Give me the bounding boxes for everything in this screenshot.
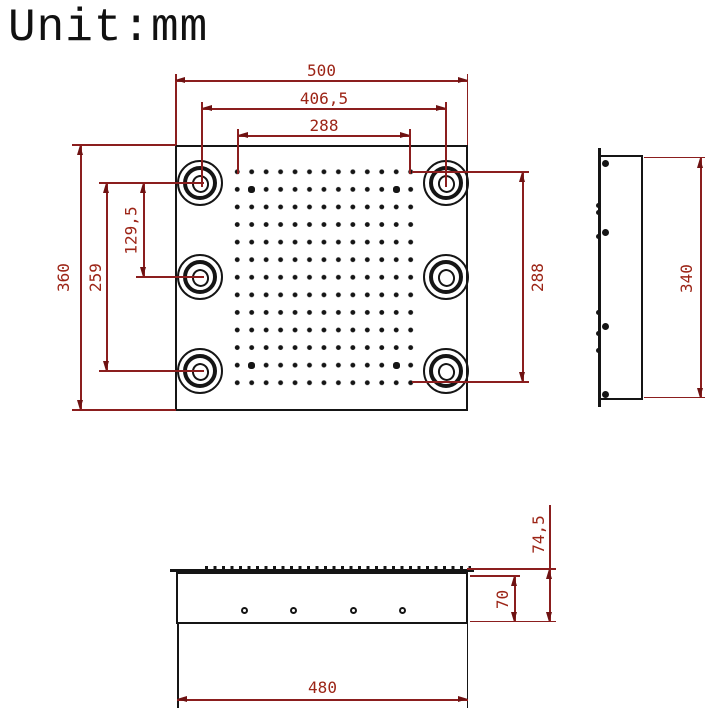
nozzle-grid — [230, 163, 418, 392]
nozzle-large — [393, 362, 400, 369]
unit-label: Unit:mm — [8, 2, 208, 54]
front-hole — [399, 607, 406, 614]
arrowhead — [519, 372, 525, 382]
arrowhead — [697, 158, 703, 168]
arrowhead — [697, 388, 703, 398]
dim-label-overall-height: 360 — [53, 145, 73, 410]
ext-line — [99, 182, 204, 184]
dim-line-360 — [80, 145, 82, 410]
front-view-body — [176, 572, 468, 624]
dim-line-288-right — [522, 172, 524, 382]
arrowhead — [519, 172, 525, 182]
ext-line — [445, 102, 447, 187]
side-hole — [602, 391, 609, 398]
nozzle-large — [393, 186, 400, 193]
ext-line — [99, 370, 204, 372]
face-bump — [596, 331, 601, 336]
dim-line-74-5 — [549, 505, 551, 622]
dim-line-288-top — [238, 135, 410, 137]
side-hole — [602, 229, 609, 236]
mount-hole — [423, 348, 469, 394]
dim-line-480 — [177, 699, 468, 701]
technical-drawing: Unit:mm 500 406,5 288 360 259 — [0, 0, 725, 725]
face-bump — [596, 210, 601, 215]
arrowhead — [546, 569, 552, 579]
arrowhead — [546, 612, 552, 622]
dim-line-129-5 — [143, 183, 145, 277]
front-hole — [241, 607, 248, 614]
dim-label-half-hole-spacing: 129,5 — [121, 183, 141, 277]
face-bump — [596, 310, 601, 315]
dim-label-hole-spacing-width: 406,5 — [202, 89, 446, 108]
ext-line — [412, 171, 529, 173]
dim-label-grid-height: 288 — [526, 172, 548, 382]
ext-line — [175, 74, 177, 145]
ext-line — [412, 381, 529, 383]
dim-line-406-5 — [202, 108, 446, 110]
dim-line-340 — [700, 158, 702, 398]
ext-line — [467, 568, 556, 570]
ext-line — [136, 276, 204, 278]
face-bump — [596, 348, 601, 353]
front-hole — [290, 607, 297, 614]
front-hole — [350, 607, 357, 614]
nozzle-large — [248, 362, 255, 369]
ext-line — [201, 102, 203, 187]
side-view-body — [600, 155, 643, 400]
dim-label-overall-width: 500 — [175, 61, 468, 80]
ext-line — [470, 621, 556, 623]
arrowhead — [77, 400, 83, 410]
face-bump — [596, 234, 601, 239]
ext-line — [467, 74, 469, 145]
nozzle-large — [248, 186, 255, 193]
ext-line — [72, 144, 176, 146]
dim-label-front-overall-height: 74,5 — [528, 501, 548, 567]
face-bump — [596, 203, 601, 208]
dim-label-hole-spacing-height: 259 — [85, 183, 105, 371]
side-view-face-edge — [598, 148, 601, 407]
dim-label-grid-width: 288 — [238, 116, 410, 135]
dim-label-body-width: 480 — [177, 678, 468, 697]
dim-label-side-height: 340 — [676, 158, 696, 398]
ext-line — [72, 409, 176, 411]
arrowhead — [77, 145, 83, 155]
dim-label-body-height: 70 — [493, 574, 513, 624]
mount-hole — [423, 254, 469, 300]
dim-line-259 — [106, 183, 108, 371]
side-hole — [602, 323, 609, 330]
dim-line-500 — [175, 80, 468, 82]
side-hole — [602, 160, 609, 167]
